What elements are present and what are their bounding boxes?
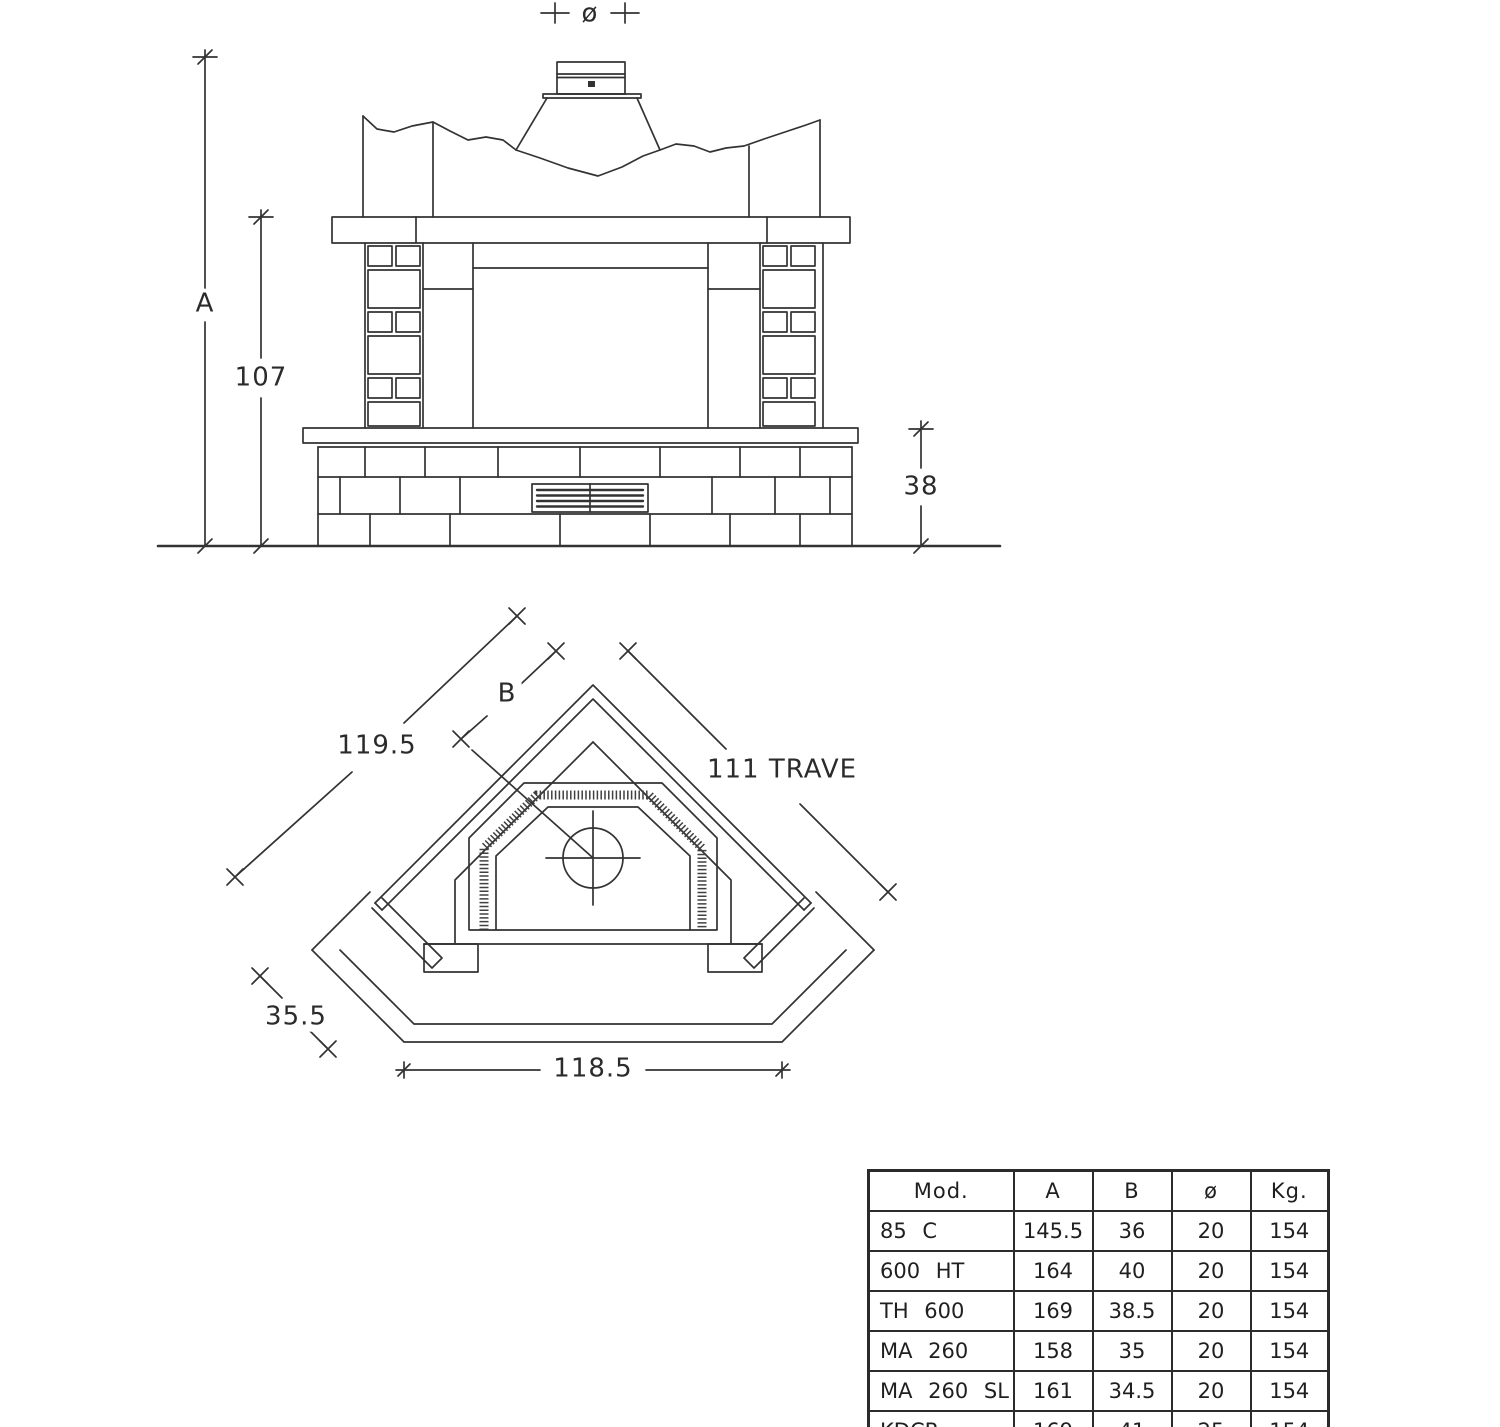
technical-drawing-page: ø A 107 38 119.5 B 111 TRAVE 35.5 118.5 … <box>0 0 1500 1427</box>
table-row: 85 C 145.5 36 20 154 <box>869 1211 1329 1251</box>
hearth-slab <box>303 428 858 447</box>
cell-mod: MA 260 <box>869 1331 1014 1371</box>
cell-mod: TH 600 <box>869 1291 1014 1331</box>
table-row: TH 600 169 38.5 20 154 <box>869 1291 1329 1331</box>
table-row: MA 260 SL 161 34.5 20 154 <box>869 1371 1329 1411</box>
cell-a: 169 <box>1014 1291 1093 1331</box>
cell-kg: 154 <box>1251 1211 1329 1251</box>
flue-crosshair <box>546 811 640 905</box>
cell-kg: 154 <box>1251 1371 1329 1411</box>
dim-label-beam-length: 111 TRAVE <box>702 756 862 785</box>
cell-d: 20 <box>1172 1211 1251 1251</box>
brick-column-left <box>365 243 423 428</box>
col-header-diameter: ø <box>1172 1171 1251 1212</box>
cell-a: 169 <box>1014 1411 1093 1427</box>
cell-a: 164 <box>1014 1251 1093 1291</box>
cell-kg: 154 <box>1251 1331 1329 1371</box>
dim-label-flue-offset: B <box>493 680 522 709</box>
cell-kg: 154 <box>1251 1251 1329 1291</box>
brick-base <box>318 447 852 545</box>
cell-a: 158 <box>1014 1331 1093 1371</box>
cell-b: 35 <box>1093 1331 1172 1371</box>
cell-b: 40 <box>1093 1251 1172 1291</box>
dim-label-mantel-height: 107 <box>230 364 293 393</box>
cell-mod: MA 260 SL <box>869 1371 1014 1411</box>
table-header-row: Mod. A B ø Kg. <box>869 1171 1329 1212</box>
cell-mod: KDCR <box>869 1411 1014 1427</box>
cell-a: 161 <box>1014 1371 1093 1411</box>
cell-b: 41 <box>1093 1411 1172 1427</box>
vent-grille <box>532 484 648 512</box>
chimney-collar <box>543 62 641 98</box>
firebox-opening <box>423 243 760 428</box>
platform-outline <box>312 892 874 1042</box>
cell-d: 20 <box>1172 1251 1251 1291</box>
cell-d: 20 <box>1172 1371 1251 1411</box>
hearth-front-lines <box>424 930 762 944</box>
col-header-mod: Mod. <box>869 1171 1014 1212</box>
brick-column-right <box>760 243 823 428</box>
side-jambs <box>372 898 814 968</box>
cell-a: 145.5 <box>1014 1211 1093 1251</box>
dim-label-chamfer: 35.5 <box>260 1003 332 1032</box>
cell-b: 38.5 <box>1093 1291 1172 1331</box>
table-row: 600 HT 164 40 20 154 <box>869 1251 1329 1291</box>
col-header-a: A <box>1014 1171 1093 1212</box>
dim-label-flue-diameter: ø <box>577 0 604 28</box>
col-header-kg: Kg. <box>1251 1171 1329 1212</box>
hood-trapezoid <box>516 98 660 150</box>
cell-d: 20 <box>1172 1331 1251 1371</box>
dim-label-side-length: 119.5 <box>332 732 421 761</box>
table-row: MA 260 158 35 20 154 <box>869 1331 1329 1371</box>
front-elevation <box>158 3 1000 553</box>
cell-kg: 154 <box>1251 1411 1329 1427</box>
mantel-shelf <box>332 217 850 243</box>
cell-d: 20 <box>1172 1291 1251 1331</box>
cell-mod: 85 C <box>869 1211 1014 1251</box>
hood-break-lines <box>363 116 820 217</box>
foot-blocks <box>424 944 762 972</box>
model-spec-table: Mod. A B ø Kg. 85 C 145.5 36 20 154 600 … <box>867 1169 1330 1427</box>
cell-mod: 600 HT <box>869 1251 1014 1291</box>
cell-b: 36 <box>1093 1211 1172 1251</box>
table-row: KDCR 169 41 25 154 <box>869 1411 1329 1427</box>
collar-bolt <box>588 81 595 87</box>
cell-kg: 154 <box>1251 1291 1329 1331</box>
flue-circle <box>472 750 640 905</box>
col-header-b: B <box>1093 1171 1172 1212</box>
dim-label-base-height: 38 <box>898 473 943 502</box>
cell-b: 34.5 <box>1093 1371 1172 1411</box>
dim-label-front-width: 118.5 <box>548 1055 637 1084</box>
dim-label-total-height: A <box>191 290 220 319</box>
cell-d: 25 <box>1172 1411 1251 1427</box>
